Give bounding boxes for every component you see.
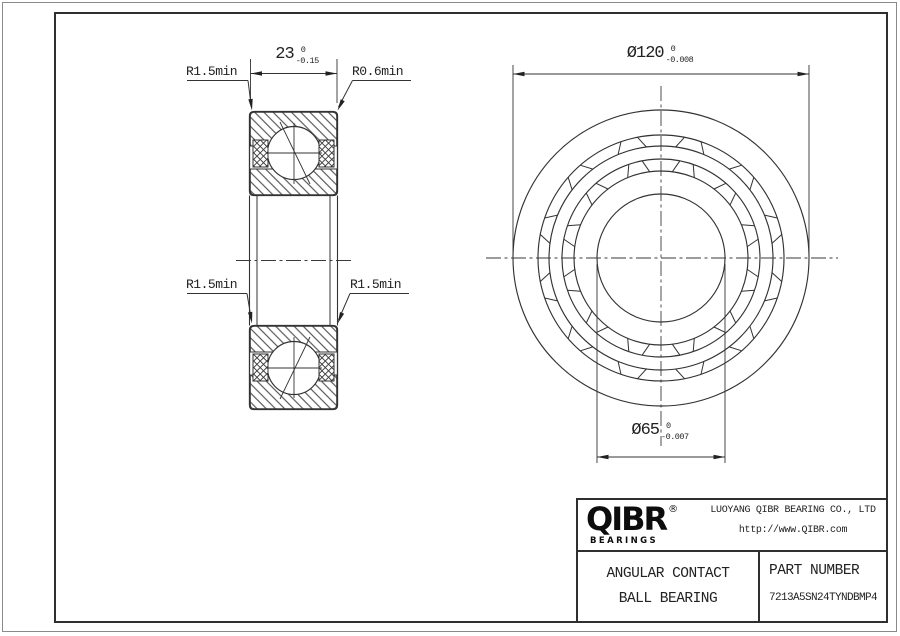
tolerance-lower: -0.15 xyxy=(296,56,319,67)
tolerance-upper: 0 xyxy=(301,45,306,56)
tolerance-upper: 0 xyxy=(671,44,676,55)
dimension-width-tolerance: 0 -0.15 xyxy=(296,45,319,66)
brand-logo: QIBR® BEARINGS xyxy=(586,503,678,546)
callout-radius-mid-left: R1.5min xyxy=(186,277,237,292)
title-block-header-row: QIBR® BEARINGS LUOYANG QIBR BEARING CO.,… xyxy=(578,500,886,552)
company-website: http://www.QIBR.com xyxy=(704,525,882,536)
dimension-od-nominal: Ø120 xyxy=(627,45,664,62)
product-type-cell: ANGULAR CONTACT BALL BEARING xyxy=(578,552,758,621)
tolerance-lower: -0.007 xyxy=(661,432,689,443)
callout-radius-top-left: R1.5min xyxy=(186,64,237,79)
registered-trademark-icon: ® xyxy=(668,504,678,515)
part-number-value: 7213A5SN24TYNDBMP4 xyxy=(769,592,886,604)
dimension-bore-tolerance: 0 -0.007 xyxy=(661,421,689,442)
part-number-label: PART NUMBER xyxy=(769,563,886,579)
product-type-line1: ANGULAR CONTACT xyxy=(606,566,729,582)
company-info: LUOYANG QIBR BEARING CO., LTD http://www… xyxy=(704,505,882,536)
callout-radius-mid-right: R1.5min xyxy=(350,277,401,292)
tolerance-lower: -0.008 xyxy=(666,55,694,66)
dimension-od-tolerance: 0 -0.008 xyxy=(666,44,694,65)
tolerance-upper: 0 xyxy=(666,421,671,432)
callout-radius-top-right: R0.6min xyxy=(352,64,403,79)
title-block: QIBR® BEARINGS LUOYANG QIBR BEARING CO.,… xyxy=(576,498,888,623)
drawing-sheet: R1.5min R0.6min R1.5min R1.5min 23 0 -0.… xyxy=(0,0,900,636)
product-type-line2: BALL BEARING xyxy=(619,591,717,607)
dimension-bore-diameter: Ø65 0 -0.007 xyxy=(631,422,688,442)
dimension-width-nominal: 23 xyxy=(275,46,293,63)
dimension-width: 23 0 -0.15 xyxy=(275,46,318,66)
part-number-cell: PART NUMBER 7213A5SN24TYNDBMP4 xyxy=(758,552,886,621)
company-name: LUOYANG QIBR BEARING CO., LTD xyxy=(704,505,882,516)
dimension-outer-diameter: Ø120 0 -0.008 xyxy=(627,45,693,65)
brand-logo-text: QIBR xyxy=(586,503,666,535)
dimension-bore-nominal: Ø65 xyxy=(631,422,659,439)
